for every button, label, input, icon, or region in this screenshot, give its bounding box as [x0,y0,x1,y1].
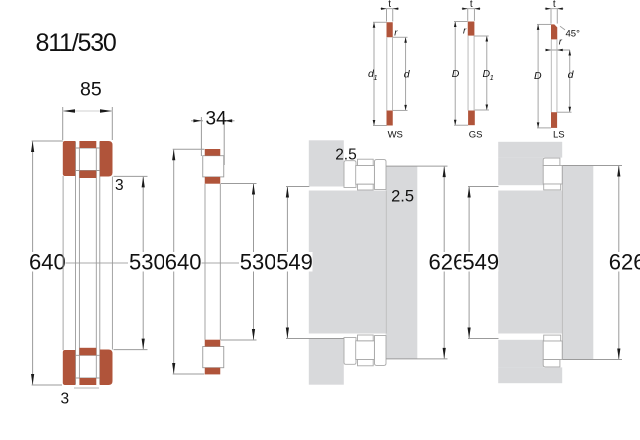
svg-text:549: 549 [276,250,313,275]
svg-text:LS: LS [553,130,565,141]
svg-text:3: 3 [115,177,124,194]
svg-text:34: 34 [206,108,228,129]
svg-text:549: 549 [462,250,499,275]
svg-text:811/530: 811/530 [36,29,116,57]
svg-text:1: 1 [490,73,494,82]
svg-text:2.5: 2.5 [391,187,414,205]
svg-text:640: 640 [29,250,66,275]
svg-text:2.5: 2.5 [335,146,357,163]
svg-text:D: D [534,70,542,82]
svg-text:45°: 45° [566,29,581,40]
svg-text:WS: WS [388,130,403,141]
svg-text:640: 640 [165,250,202,275]
svg-text:GS: GS [469,130,483,141]
svg-text:530: 530 [129,250,166,275]
svg-text:530: 530 [240,250,277,275]
svg-text:626: 626 [609,250,640,275]
svg-text:3: 3 [61,391,70,408]
svg-text:626: 626 [429,250,466,275]
svg-text:D: D [452,68,460,80]
svg-text:1: 1 [373,73,377,82]
svg-text:85: 85 [80,79,102,101]
